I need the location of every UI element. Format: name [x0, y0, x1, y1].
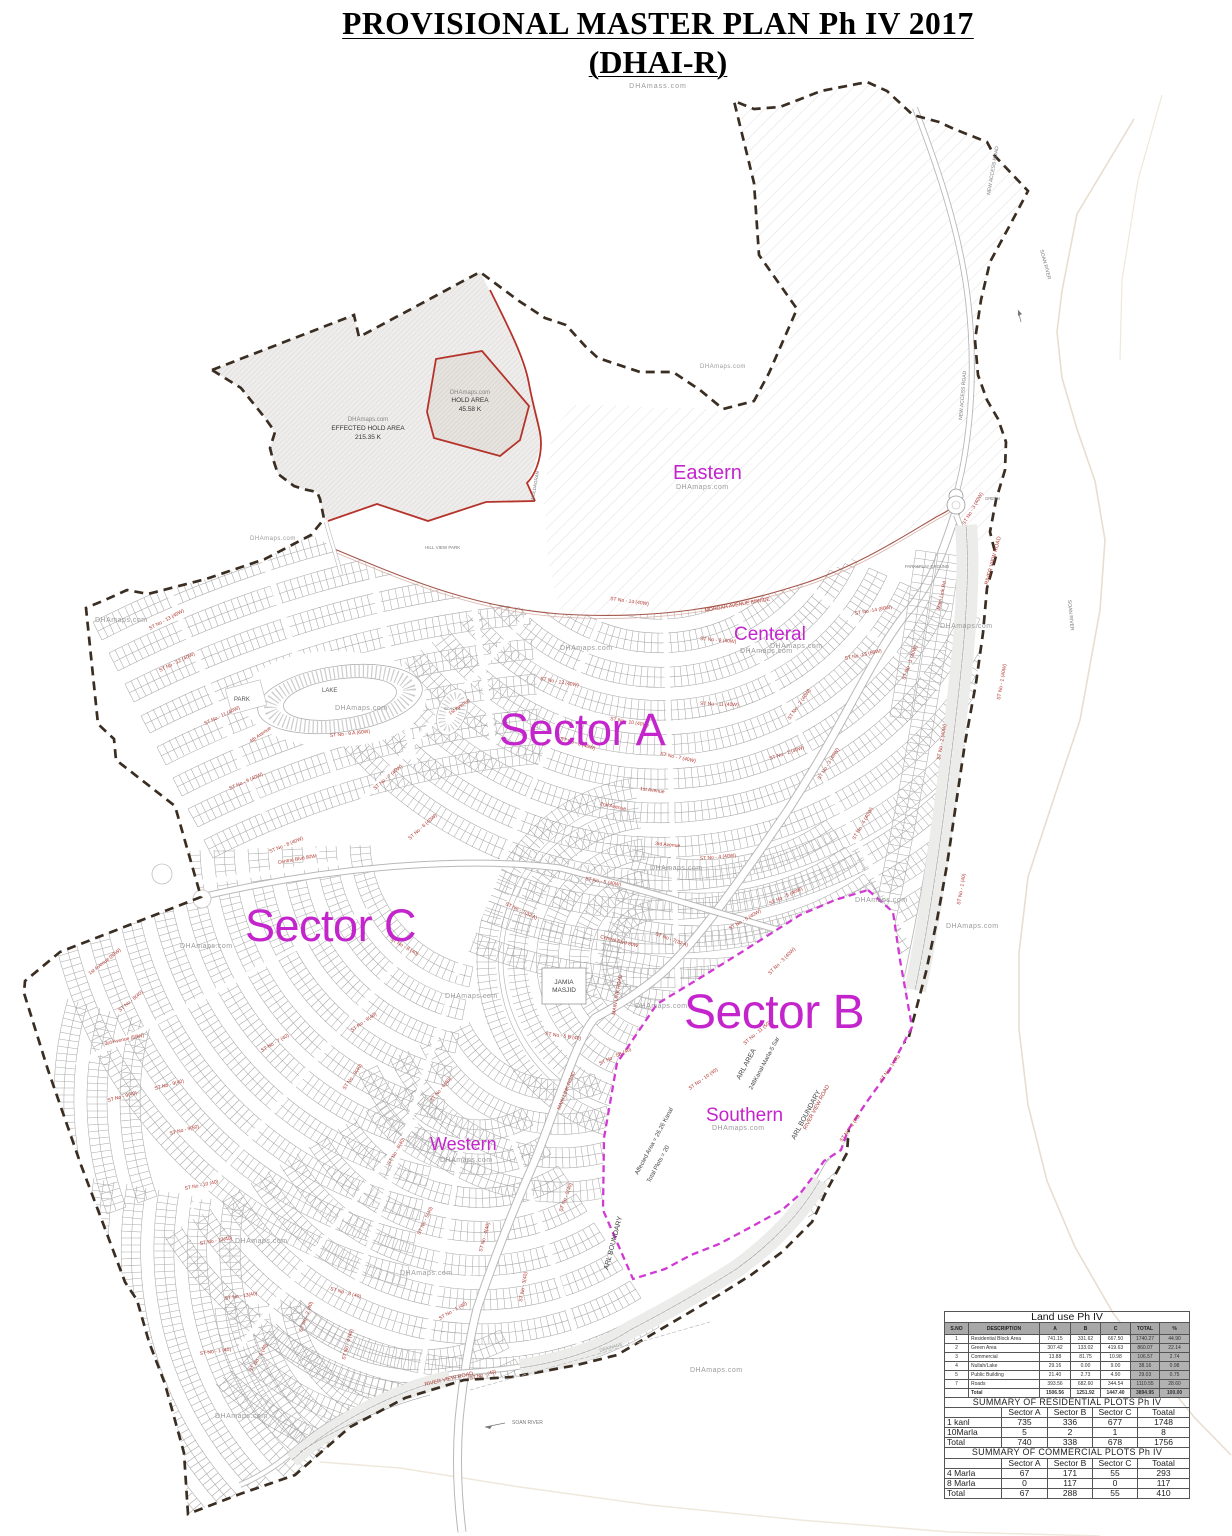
- svg-text:DHAmaps.com: DHAmaps.com: [650, 865, 703, 872]
- svg-text:DHAmaps.com: DHAmaps.com: [400, 1270, 453, 1277]
- svg-text:JAMIA: JAMIA: [554, 979, 574, 986]
- svg-text:PARK&PLAY GROUND: PARK&PLAY GROUND: [905, 564, 949, 569]
- svg-text:DHAmaps.com: DHAmaps.com: [450, 390, 490, 396]
- svg-text:DHAmaps.com: DHAmaps.com: [676, 484, 729, 491]
- svg-text:215.35 K: 215.35 K: [355, 434, 382, 441]
- svg-text:DHAmaps.com: DHAmaps.com: [180, 943, 233, 950]
- svg-text:DHAmaps.com: DHAmaps.com: [445, 993, 498, 1000]
- svg-text:DHAmaps.com: DHAmaps.com: [560, 645, 613, 652]
- svg-text:Centeral: Centeral: [734, 624, 806, 645]
- svg-text:DHAmaps.com: DHAmaps.com: [440, 1157, 493, 1164]
- svg-text:DHAmaps.com: DHAmaps.com: [946, 923, 999, 930]
- svg-text:DHAmaps.com: DHAmaps.com: [635, 1003, 688, 1010]
- svg-text:PARK: PARK: [234, 697, 250, 703]
- svg-text:LAKE: LAKE: [322, 688, 337, 694]
- svg-text:DHAmaps.com: DHAmaps.com: [95, 617, 148, 624]
- svg-text:DHAmaps.com: DHAmaps.com: [940, 623, 993, 630]
- svg-text:DHAmaps.com: DHAmaps.com: [250, 536, 296, 542]
- svg-text:EFFECTED HOLD AREA: EFFECTED HOLD AREA: [331, 425, 405, 432]
- svg-text:Eastern: Eastern: [673, 462, 742, 484]
- svg-text:SOAN RIVER: SOAN RIVER: [512, 1420, 543, 1426]
- svg-text:DHAmaps.com: DHAmaps.com: [335, 705, 388, 712]
- svg-text:DHAmaps.com: DHAmaps.com: [855, 897, 908, 904]
- svg-text:45.58 K: 45.58 K: [459, 406, 482, 413]
- svg-text:MASJID: MASJID: [552, 987, 576, 994]
- svg-text:DHAmaps.com: DHAmaps.com: [690, 1367, 743, 1374]
- svg-text:Southern: Southern: [706, 1105, 783, 1126]
- svg-text:DHAmaps.com: DHAmaps.com: [700, 364, 746, 370]
- svg-text:Sector C: Sector C: [245, 900, 416, 951]
- svg-text:DHAmaps.com: DHAmaps.com: [215, 1413, 268, 1420]
- svg-text:Sector B: Sector B: [684, 986, 864, 1039]
- svg-text:GREEN: GREEN: [985, 496, 1000, 501]
- svg-text:DHAmaps.com: DHAmaps.com: [740, 648, 793, 655]
- svg-text:DHAmaps.com: DHAmaps.com: [235, 1238, 288, 1245]
- svg-text:Western: Western: [430, 1134, 497, 1154]
- svg-text:Sector A: Sector A: [499, 704, 666, 755]
- svg-text:DHAmaps.com: DHAmaps.com: [712, 1125, 765, 1132]
- svg-text:HOLD AREA: HOLD AREA: [451, 397, 489, 404]
- svg-text:HILL VIEW PARK: HILL VIEW PARK: [425, 545, 460, 550]
- svg-text:DHAmaps.com: DHAmaps.com: [348, 417, 388, 423]
